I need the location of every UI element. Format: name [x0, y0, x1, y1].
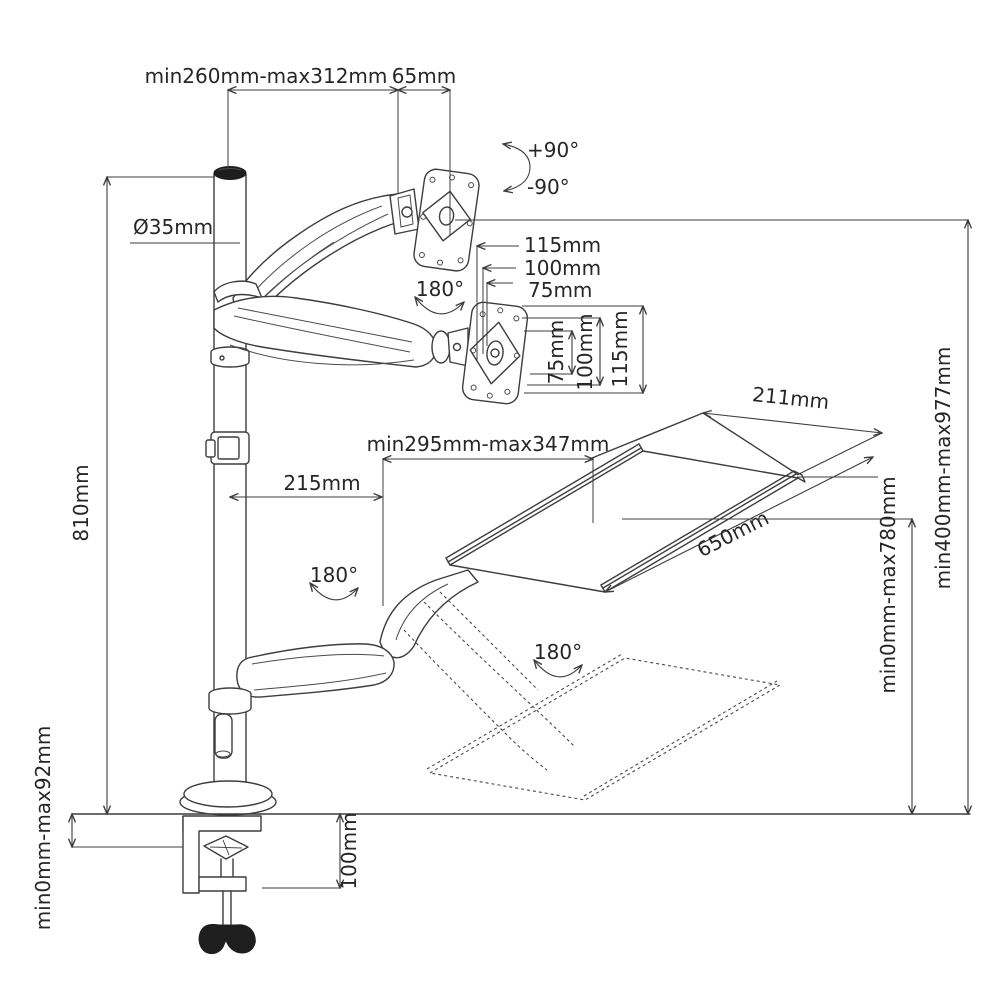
keyboard-tray-ghost: [427, 654, 780, 800]
dim-label-pole-diameter: Ø35mm: [133, 215, 213, 239]
dim-label-clamp-height: 100mm: [337, 812, 361, 889]
dim-label-arm-swivel: 180°: [310, 563, 358, 587]
dim-arm-pivot-offset: 215mm: [230, 471, 382, 497]
dim-label-tilt-up: +90°: [527, 138, 579, 162]
dim-arm-swivel: 180°: [310, 563, 358, 600]
dim-label-vesa-height-75: 75mm: [544, 320, 568, 384]
dim-label-desk-thickness: min0mm-max92mm: [31, 726, 55, 931]
monitor-arm-lowered: [214, 296, 468, 367]
dim-vesa-heights: 75mm 100mm 115mm: [522, 306, 643, 393]
dim-label-vesa-width-100: 100mm: [524, 256, 601, 280]
dim-label-vesa-height-100: 100mm: [573, 313, 597, 390]
tilt-arrow-icon: [503, 144, 530, 191]
monitor-arm-top-joint: [390, 189, 419, 234]
pole-base: [180, 781, 276, 815]
dim-label-tilt-down: -90°: [527, 175, 570, 199]
clamp-knob: [199, 924, 255, 953]
dim-label-monitor-swivel: 180°: [416, 277, 464, 301]
dim-label-tray-depth: 211mm: [751, 382, 830, 414]
dim-label-tray-slide: min295mm-max347mm: [367, 432, 610, 456]
dim-label-arm-pivot-offset: 215mm: [283, 471, 360, 495]
dim-label-pole-extension: min260mm-max312mm: [145, 64, 388, 88]
dim-tray-swivel: 180°: [534, 640, 582, 677]
dim-label-tray-swivel: 180°: [534, 640, 582, 664]
tray-support: [380, 570, 478, 658]
keyboard-arm: [237, 644, 394, 697]
mount-dimension-diagram: min260mm-max312mm 65mm +90° -90° Ø35mm 8…: [0, 0, 1004, 1004]
diagram-page: min260mm-max312mm 65mm +90° -90° Ø35mm 8…: [0, 0, 1004, 1004]
dim-label-monitor-height-range: min400mm-max977mm: [931, 347, 955, 590]
vesa-plate-front: [461, 301, 529, 405]
dim-label-vesa-offset: 65mm: [392, 64, 456, 88]
pole-lower-collar: [209, 688, 251, 758]
dim-label-tray-height-range: min0mm-max780mm: [876, 476, 900, 693]
dim-tilt-rotation: +90° -90°: [503, 138, 579, 199]
dim-label-vesa-height-115: 115mm: [608, 310, 632, 387]
dim-pole-height: 810mm: [69, 177, 215, 814]
dim-label-pole-height: 810mm: [69, 464, 93, 541]
dim-tray-depth: 211mm: [703, 382, 882, 475]
dim-pole-diameter: Ø35mm: [130, 215, 240, 243]
dim-label-vesa-width-75: 75mm: [528, 278, 592, 302]
dim-label-vesa-width-115: 115mm: [524, 233, 601, 257]
dim-clamp-height: 100mm: [262, 812, 361, 889]
desk-clamp: [183, 816, 261, 954]
dim-monitor-swivel: 180°: [415, 277, 464, 314]
pole-lock-collar: [206, 432, 249, 464]
